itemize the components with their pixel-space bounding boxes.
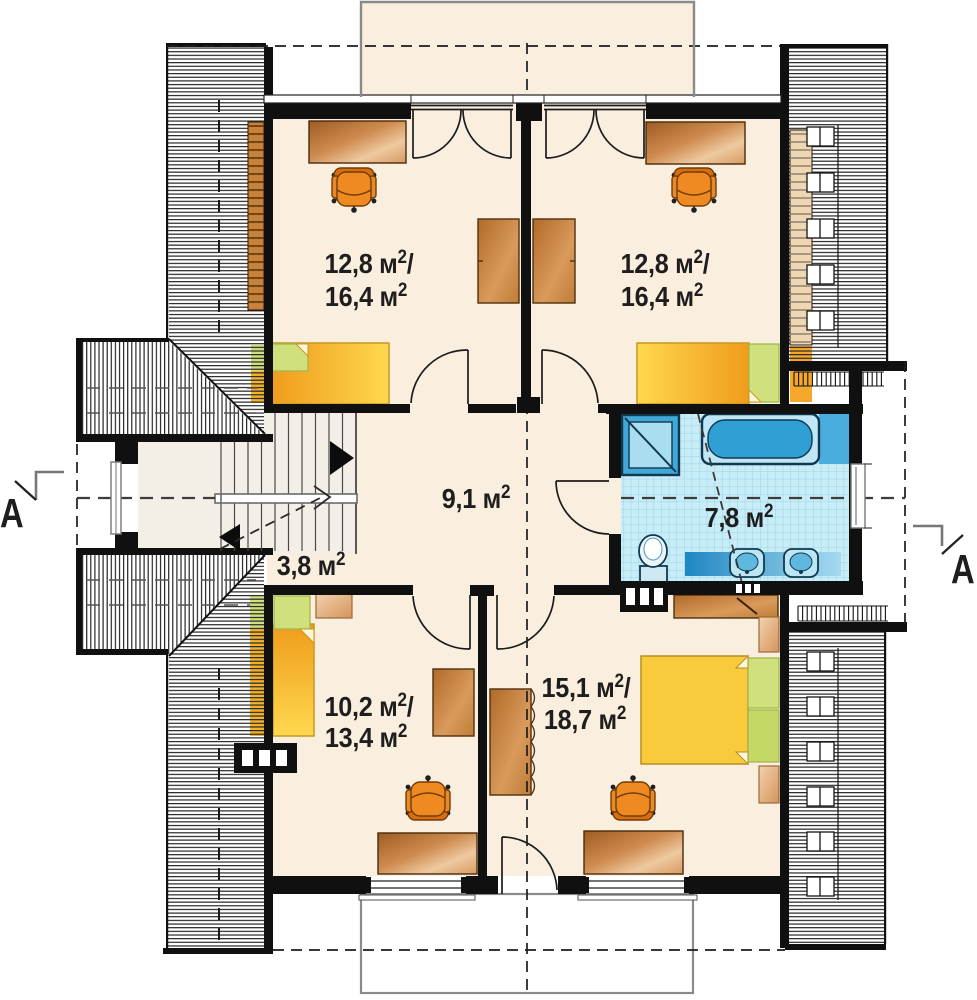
svg-text:16,4 м2: 16,4 м2 [325,279,407,312]
svg-text:3,8 м2: 3,8 м2 [277,548,346,581]
svg-text:13,4 м2: 13,4 м2 [325,720,407,753]
svg-text:7,8 м2: 7,8 м2 [705,500,774,533]
svg-text:A: A [0,489,24,535]
svg-text:A: A [951,545,975,591]
svg-text:9,1 м2: 9,1 м2 [442,481,511,514]
svg-text:16,4 м2: 16,4 м2 [621,279,703,312]
svg-text:18,7 м2: 18,7 м2 [544,702,626,735]
